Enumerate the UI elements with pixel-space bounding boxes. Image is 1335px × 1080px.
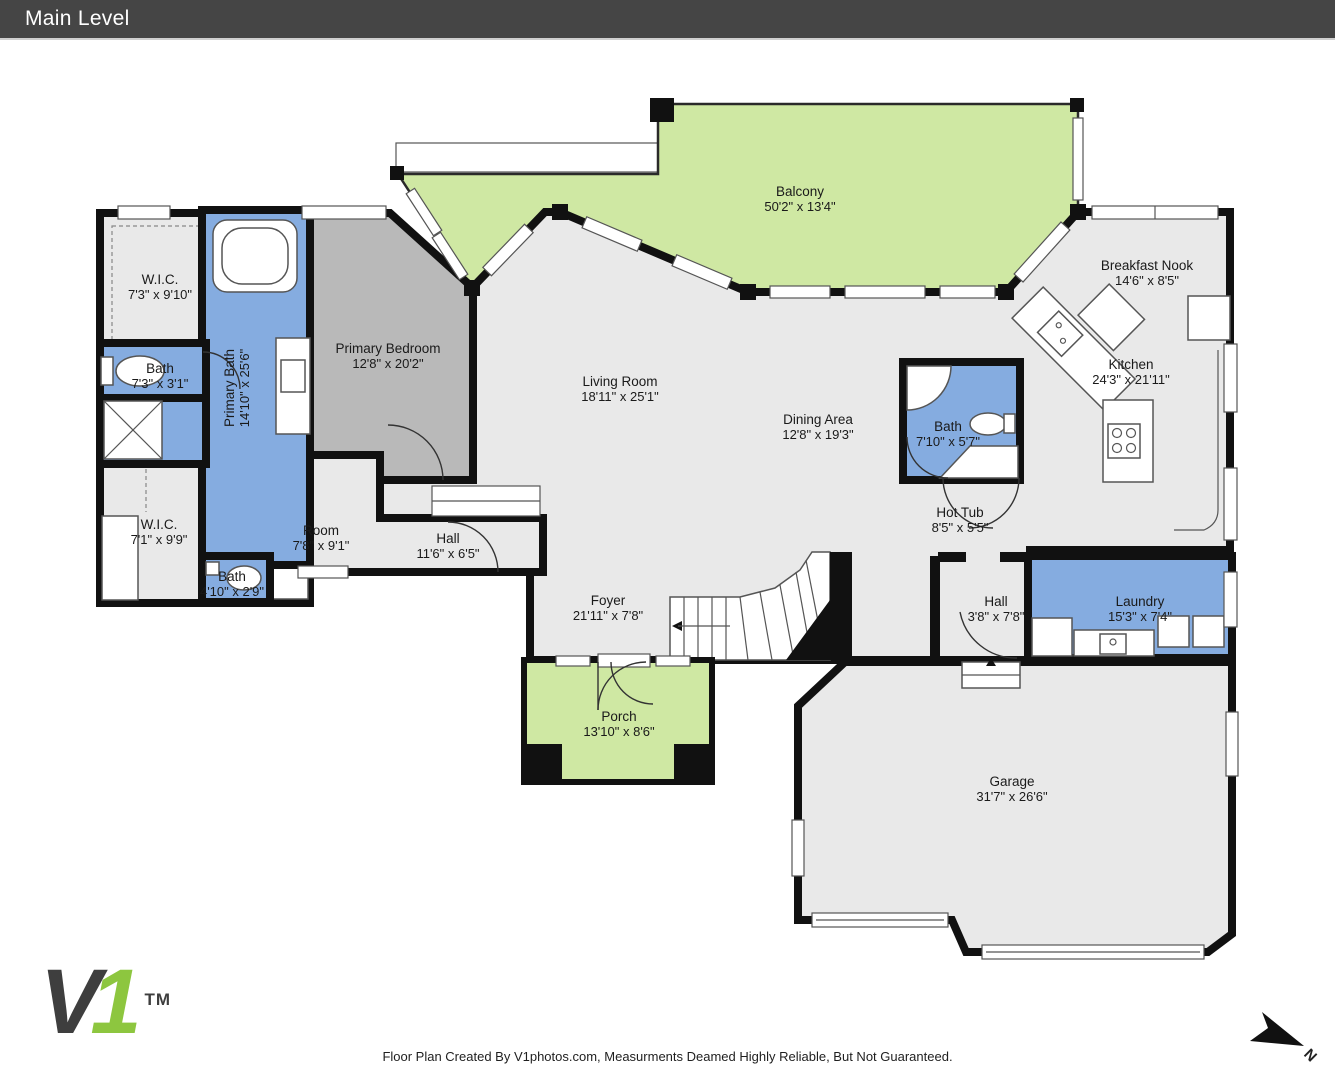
logo-v: V [40,951,90,1053]
room-label-living-room: Living Room18'11" x 25'1" [581,374,659,404]
room-label-bath-upper: Bath7'3" x 3'1" [132,361,189,391]
room-label-breakfast-nook: Breakfast Nook14'6" x 8'5" [1101,258,1193,288]
v1photos-logo: V1TM [40,956,171,1046]
room-label-room: Room7'8" x 9'1" [293,523,350,553]
room-label-porch: Porch13'10" x 8'6" [583,709,654,739]
floor-plan-page: Main Level [0,0,1335,1080]
room-label-kitchen: Kitchen24'3" x 21'11" [1092,357,1170,387]
room-label-bath-lower: Bath4'10" x 2'9" [200,569,264,599]
room-label-bath-mid: Bath7'10" x 5'7" [916,419,980,449]
room-label-hot-tub: Hot Tub8'5" x 5'5" [932,505,989,535]
room-label-garage: Garage31'7" x 26'6" [976,774,1047,804]
room-label-primary-bedroom: Primary Bedroom12'8" x 20'2" [335,341,440,371]
room-label-balcony: Balcony50'2" x 13'4" [764,184,835,214]
logo-one: 1 [90,951,130,1053]
room-label-laundry: Laundry15'3" x 7'4" [1108,594,1172,624]
floor-plan-drawing: N [0,0,1335,1080]
room-label-foyer: Foyer21'11" x 7'8" [573,593,643,623]
room-label-wic-lower: W.I.C.7'1" x 9'9" [131,517,188,547]
garage-area [792,662,1238,959]
credit-line: Floor Plan Created By V1photos.com, Meas… [0,1049,1335,1064]
room-label-hall-main: Hall11'6" x 6'5" [416,531,479,561]
room-label-hall-small: Hall3'8" x 7'8" [968,594,1025,624]
room-label-wic-upper: W.I.C.7'3" x 9'10" [128,272,192,302]
logo-tm: TM [145,990,172,1009]
room-label-primary-bath: Primary Bath14'10" x 25'6" [222,349,252,428]
room-label-dining-area: Dining Area12'8" x 19'3" [782,412,853,442]
